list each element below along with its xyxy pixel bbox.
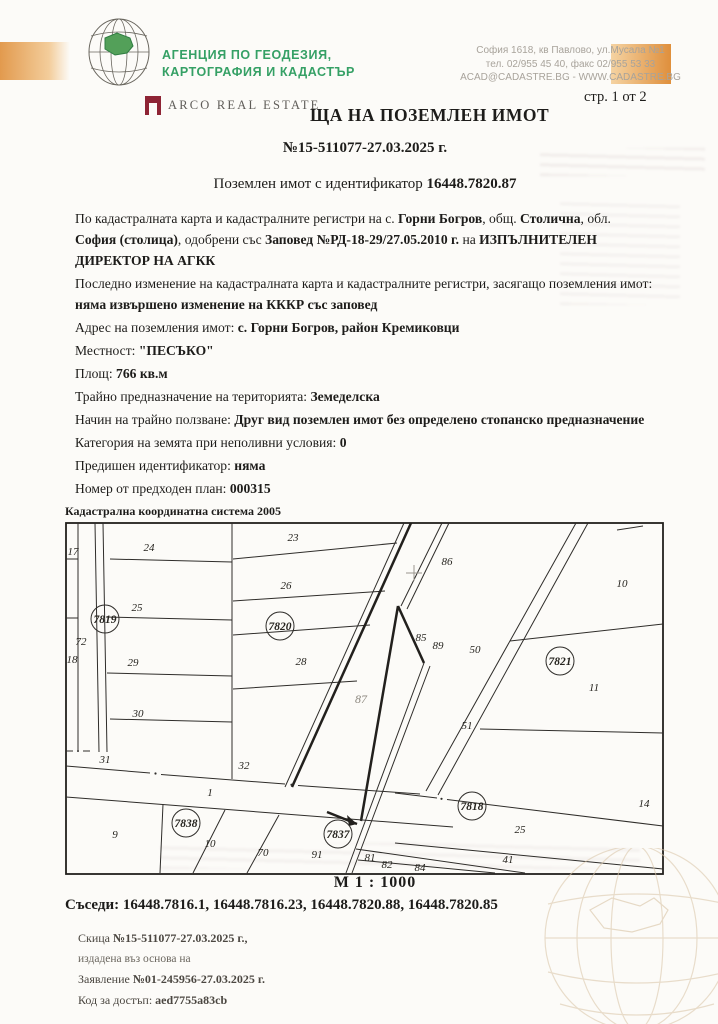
parcel-number-label: 25 bbox=[515, 824, 527, 836]
parcel-number-label: 85 bbox=[416, 632, 428, 644]
parcel-number-label: 87 bbox=[355, 692, 368, 706]
parcel-number-label: 84 bbox=[415, 862, 427, 874]
document-title: ЩА НА ПОЗЕМЛЕН ИМОТ bbox=[310, 105, 549, 126]
parcel-circle-number: 7838 bbox=[175, 818, 198, 830]
paragraph: Последно изменение на кадастралната карт… bbox=[75, 273, 653, 315]
globe-watermark bbox=[482, 848, 718, 1024]
map-scale: М 1 : 1000 bbox=[255, 874, 495, 892]
parcel-circle-number: 7837 bbox=[327, 829, 351, 841]
parcel-number-label: 91 bbox=[312, 849, 323, 861]
parcel-number-label: 9 bbox=[112, 829, 118, 841]
address-line: София 1618, кв Павлово, ул.Мусала №1 bbox=[448, 44, 693, 58]
parcel-number-label: 25 bbox=[132, 602, 144, 614]
cadastral-map: 1718242529303172232628321868589505187101… bbox=[65, 521, 665, 879]
footer-access-code: Код за достъп: aed7755a83cb bbox=[78, 993, 227, 1008]
parcel-number-label: 17 bbox=[68, 546, 80, 558]
paragraph: Местност: "ПЕСЪКО" bbox=[75, 340, 653, 361]
parcel-number-label: 70 bbox=[258, 847, 270, 859]
agency-name-line2: КАРТОГРАФИЯ И КАДАСТЪР bbox=[162, 64, 392, 81]
parcel-circle-number: 7821 bbox=[549, 656, 572, 668]
paragraph: По кадастралната карта и кадастралните р… bbox=[75, 208, 653, 271]
paragraph: Трайно предназначение на територията: Зе… bbox=[75, 386, 653, 407]
parcel-number-label: 81 bbox=[365, 852, 376, 864]
parcel-number-label: 82 bbox=[382, 859, 394, 871]
paragraph: Адрес на поземления имот: с. Горни Богро… bbox=[75, 317, 653, 338]
parcel-number-label: 28 bbox=[296, 656, 308, 668]
address-line: ACAD@CADASTRE.BG - WWW.CADASTRE.BG bbox=[448, 71, 693, 85]
map-caption: Кадастрална координатна система 2005 bbox=[65, 504, 281, 519]
parcel-number-label: 72 bbox=[76, 636, 88, 648]
parcel-circle-number: 7820 bbox=[269, 621, 292, 633]
parcel-number-label: 10 bbox=[205, 838, 217, 850]
address-line: тел. 02/955 45 40, факс 02/955 53 33 bbox=[448, 58, 693, 72]
arco-arch-icon bbox=[145, 96, 161, 115]
paragraph: Начин на трайно ползване: Друг вид позем… bbox=[75, 409, 653, 430]
arco-logo-text: ARCO REAL ESTATE bbox=[168, 98, 321, 113]
neighbors-line: Съседи: 16448.7816.1, 16448.7816.23, 164… bbox=[65, 897, 498, 914]
parcel-circle-number: 7819 bbox=[94, 614, 117, 626]
paragraph: Категория на земята при неполивни услови… bbox=[75, 432, 653, 453]
parcel-number-label: 26 bbox=[281, 580, 293, 592]
parcel-number-label: 11 bbox=[589, 682, 599, 694]
parcel-number-label: 31 bbox=[99, 754, 111, 766]
property-description: По кадастралната карта и кадастралните р… bbox=[75, 208, 653, 501]
parcel-number-label: 29 bbox=[128, 657, 140, 669]
paragraph: Площ: 766 кв.м bbox=[75, 363, 653, 384]
scanned-cadastral-document: АГЕНЦИЯ ПО ГЕОДЕЗИЯ, КАРТОГРАФИЯ И КАДАС… bbox=[0, 0, 718, 1024]
parcel-number-label: 89 bbox=[433, 640, 445, 652]
agency-globe-logo bbox=[86, 14, 152, 88]
agency-address-block: София 1618, кв Павлово, ул.Мусала №1 тел… bbox=[448, 44, 693, 85]
paragraph: Номер от предходен план: 000315 bbox=[75, 478, 653, 499]
parcel-number-label: 23 bbox=[288, 532, 300, 544]
bleed-through-text bbox=[540, 148, 705, 176]
footer-sketch-number: Скица №15-511077-27.03.2025 г., bbox=[78, 931, 248, 946]
agency-name: АГЕНЦИЯ ПО ГЕОДЕЗИЯ, КАРТОГРАФИЯ И КАДАС… bbox=[162, 47, 392, 81]
parcel-number-label: 32 bbox=[238, 760, 251, 772]
parcel-number-label: 50 bbox=[470, 644, 482, 656]
parcel-number-label: 18 bbox=[67, 654, 79, 666]
parcel-circle-number: 7818 bbox=[461, 801, 484, 813]
footer-issued-basis: издадена въз основа на bbox=[78, 953, 191, 965]
subject-identifier-line: Поземлен имот с идентификатор 16448.7820… bbox=[65, 176, 665, 193]
page-number: стр. 1 от 2 bbox=[584, 89, 647, 106]
parcel-labels: 1718242529303172232628321868589505187101… bbox=[67, 532, 651, 874]
parcel-number-label: 1 bbox=[207, 787, 213, 799]
parcel-number-label: 86 bbox=[442, 556, 454, 568]
footer-application-number: Заявление №01-245956-27.03.2025 г. bbox=[78, 972, 265, 987]
orange-bar-left bbox=[0, 42, 70, 80]
parcel-number-label: 24 bbox=[144, 542, 156, 554]
parcel-number-label: 51 bbox=[462, 720, 473, 732]
parcel-number-label: 10 bbox=[617, 578, 629, 590]
parcel-number-label: 30 bbox=[132, 708, 145, 720]
arco-logo: ARCO REAL ESTATE bbox=[145, 96, 321, 115]
parcel-number-label: 14 bbox=[639, 798, 651, 810]
paragraph: Предишен идентификатор: няма bbox=[75, 455, 653, 476]
agency-name-line1: АГЕНЦИЯ ПО ГЕОДЕЗИЯ, bbox=[162, 47, 392, 64]
